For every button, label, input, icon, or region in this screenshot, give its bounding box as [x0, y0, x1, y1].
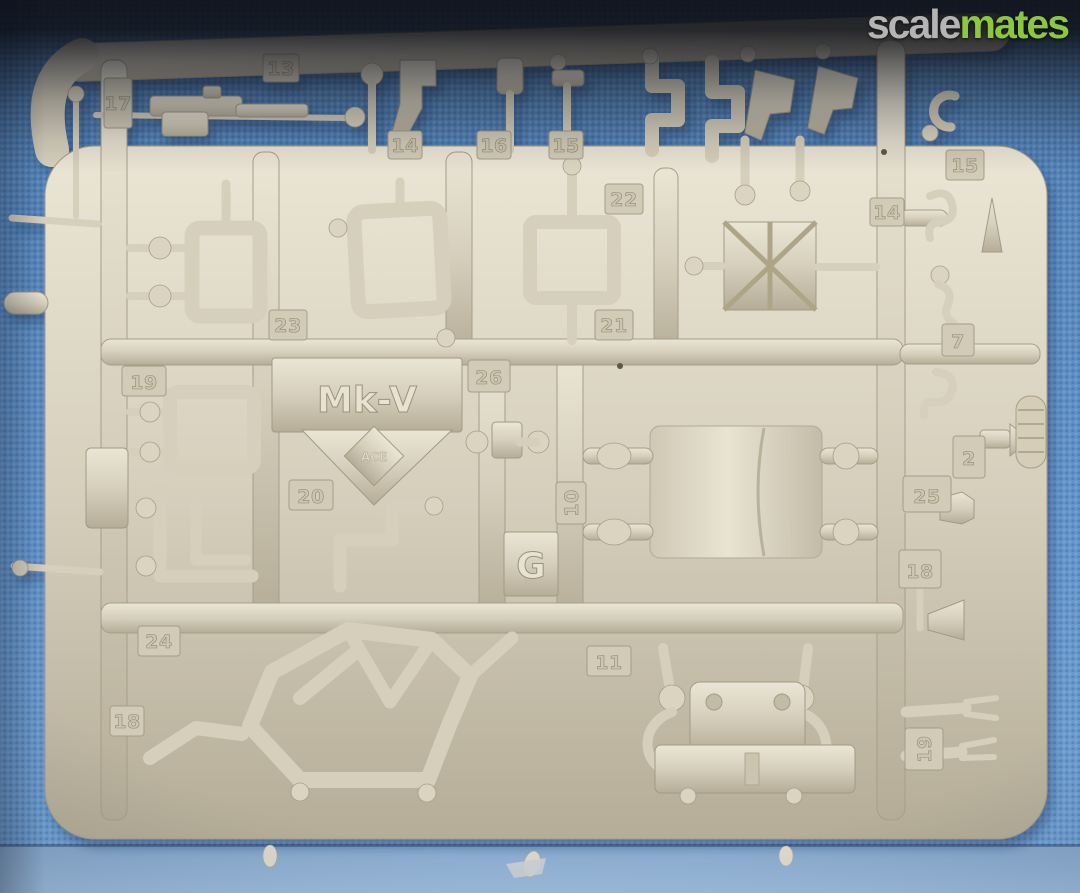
- part-number-label: 18: [113, 711, 140, 733]
- part-number-label: 19: [130, 372, 157, 394]
- part-number-label: 14: [391, 135, 418, 157]
- part-number-label: 18: [906, 561, 933, 583]
- part-number-label: 7: [951, 331, 965, 353]
- part-number-label: 23: [274, 315, 301, 337]
- part-number-label: 16: [480, 135, 507, 157]
- photo-model-kit-sprue: Mk-V ACE G: [0, 0, 1080, 893]
- part-number-label: 24: [145, 631, 172, 653]
- part-number-label: 17: [104, 93, 131, 115]
- part-number-tag: 13: [263, 54, 299, 82]
- part-number-tag: 19: [905, 728, 943, 770]
- part-number-tag: 7: [942, 324, 974, 356]
- part-number-label: 10: [561, 489, 583, 516]
- x-brace-panel-part: [724, 222, 816, 310]
- part-number-tag: 16: [477, 131, 511, 159]
- part-number-tag: 22: [605, 184, 643, 214]
- part-number-tag: 19: [122, 366, 166, 396]
- part-number-label: 25: [913, 486, 940, 508]
- watermark-mates: mates: [959, 1, 1068, 47]
- part-number-tag: 21: [595, 310, 633, 340]
- capsule-part: [4, 292, 48, 314]
- scalemates-watermark: scalemates: [867, 2, 1068, 47]
- part-number-label: 13: [267, 58, 294, 80]
- part-number-label: 15: [951, 155, 978, 177]
- sprue-letter: G: [516, 546, 546, 587]
- small-part: [497, 58, 523, 94]
- part-number-tag: 18: [899, 550, 941, 588]
- part-number-tag: 18: [110, 706, 144, 736]
- part-number-tag: 14: [388, 131, 422, 159]
- vertical-rail: [446, 152, 472, 358]
- part-number-tag: 10: [556, 482, 586, 524]
- part-number-label: 14: [873, 202, 900, 224]
- part-number-label: 21: [600, 315, 627, 337]
- part-number-tag: 15: [946, 150, 984, 180]
- part-number-tag: 20: [289, 480, 333, 510]
- part-number-tag: 11: [587, 646, 631, 676]
- part-number-tag: 17: [104, 78, 132, 128]
- horizontal-rail: [101, 603, 903, 633]
- vertical-rail: [654, 168, 678, 354]
- part-number-label: 11: [595, 652, 622, 674]
- flat-panel-part: [86, 448, 128, 528]
- part-number-label: 2: [962, 448, 976, 470]
- part-number-label: 19: [914, 735, 936, 762]
- sprue-letter-tab: G: [504, 532, 558, 596]
- part-number-tag: 26: [468, 360, 510, 392]
- model-label: Mk-V: [317, 380, 417, 421]
- part-number-tag: 23: [269, 310, 307, 340]
- part-number-tag: 25: [903, 476, 951, 512]
- part-number-tag: 14: [870, 198, 904, 226]
- part-number-tag: 15: [549, 131, 583, 159]
- part-number-label: 22: [610, 189, 637, 211]
- sprue-photo: Mk-V ACE G: [0, 0, 1080, 893]
- stowage-box-part: [650, 426, 822, 558]
- vertical-rail: [877, 40, 905, 820]
- watermark-scale: scale: [867, 1, 960, 47]
- part-number-label: 15: [552, 135, 579, 157]
- maker-logo: ACE: [361, 450, 387, 464]
- part-number-label: 20: [297, 486, 324, 508]
- part-number-tag: 2: [953, 436, 985, 478]
- part-number-tag: 24: [138, 626, 180, 656]
- part-number-label: 26: [475, 367, 502, 389]
- textured-roll-part: [1016, 396, 1046, 468]
